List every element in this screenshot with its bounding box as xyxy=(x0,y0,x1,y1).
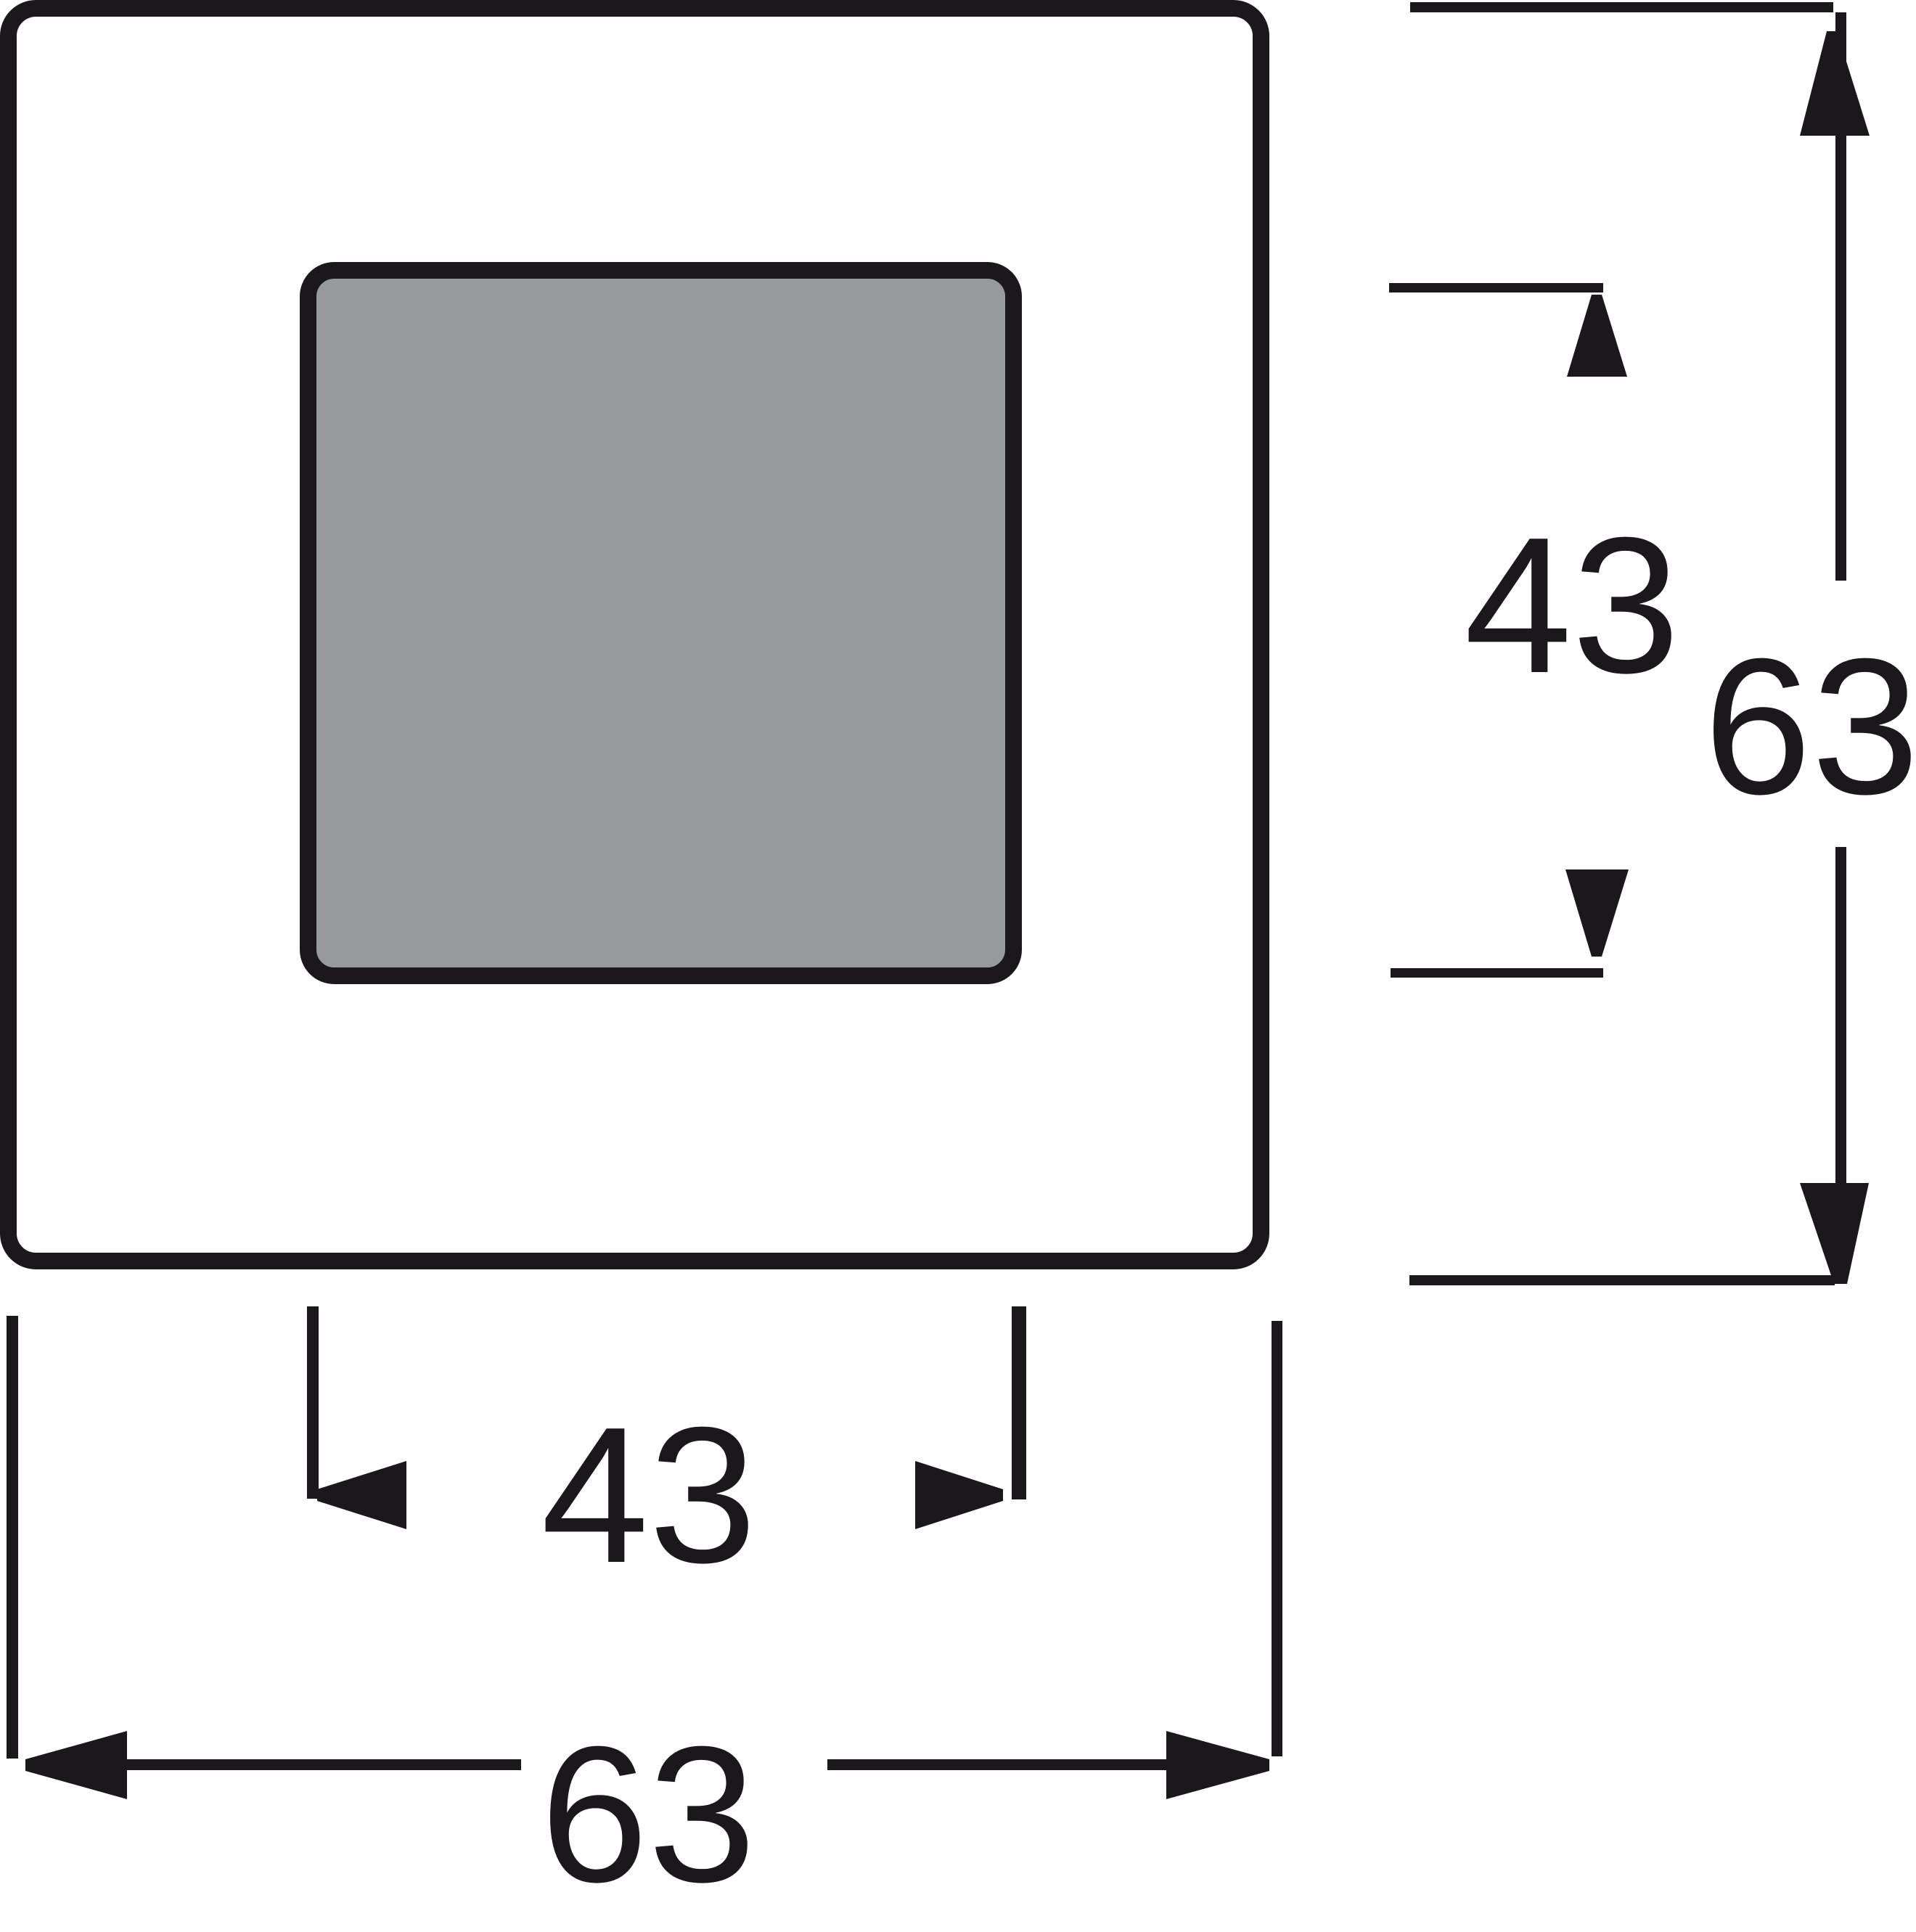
svg-text:63: 63 xyxy=(541,1706,756,1923)
svg-text:43: 43 xyxy=(1465,496,1680,713)
svg-text:63: 63 xyxy=(1704,618,1916,835)
svg-text:43: 43 xyxy=(541,1386,757,1603)
